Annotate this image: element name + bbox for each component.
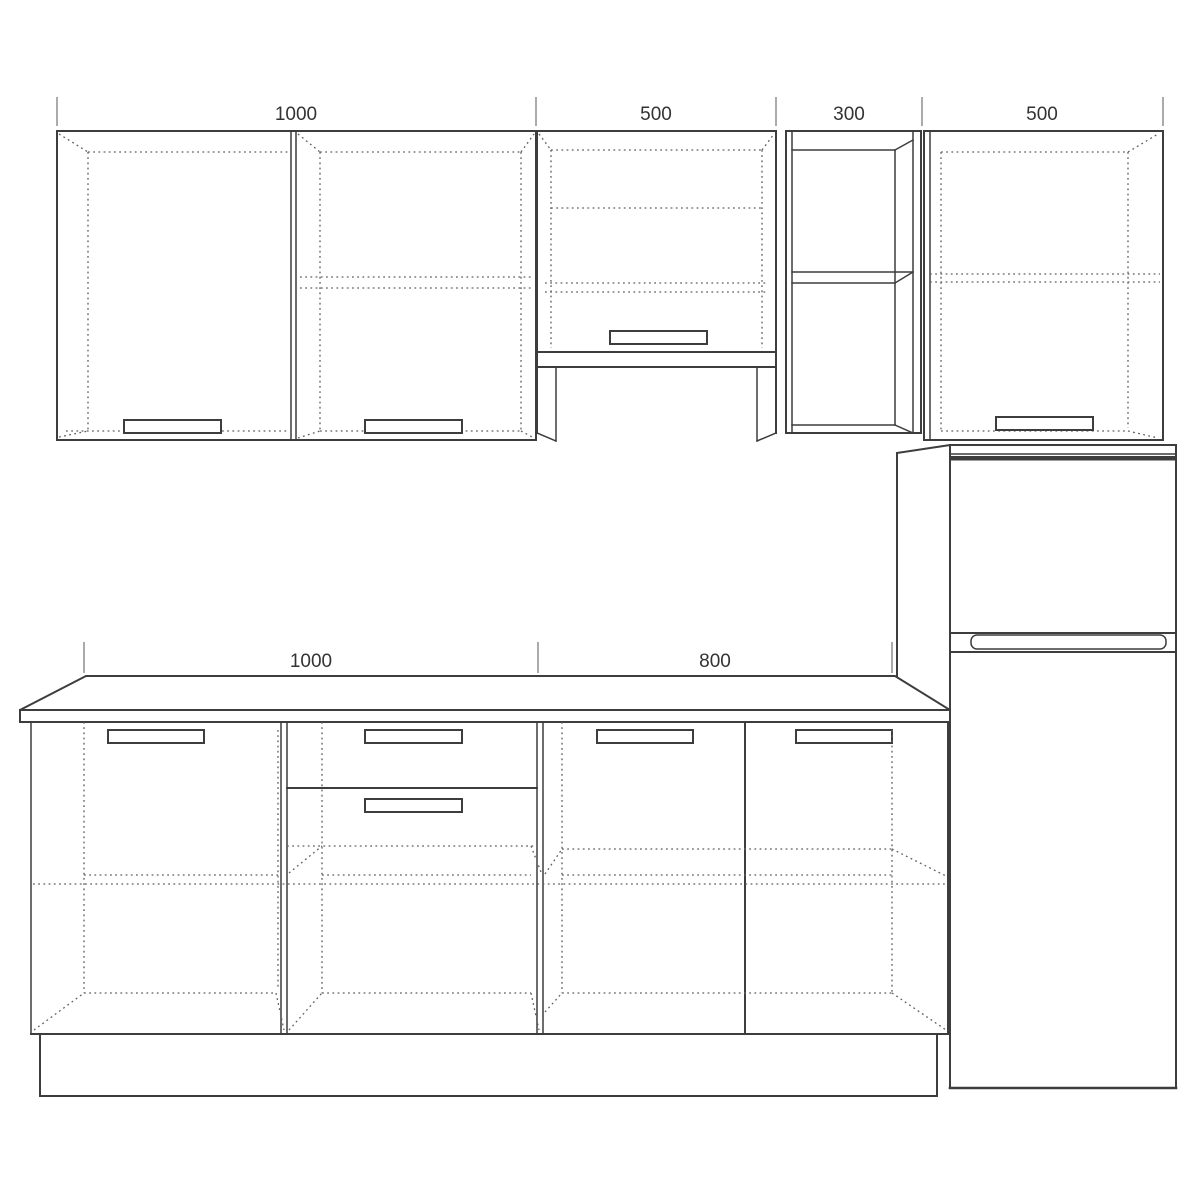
cabinet-outline xyxy=(537,131,776,352)
drawer-handle xyxy=(365,799,462,812)
wall-cabinet-1000 xyxy=(57,131,536,440)
door-handle xyxy=(124,420,221,433)
open-shelf-300 xyxy=(786,131,921,433)
leg-chamfer xyxy=(537,433,556,441)
countertop-outline xyxy=(20,676,950,722)
door-handle xyxy=(796,730,892,743)
dim-label-wall-500a: 500 xyxy=(640,104,672,125)
fridge-handle-recess xyxy=(971,635,1166,649)
top-dimension-row: 1000 500 300 500 xyxy=(57,97,1163,126)
kitchen-elevation-page: 1000 500 300 500 xyxy=(0,0,1200,1200)
door-handle xyxy=(610,331,707,344)
drawer-handle xyxy=(365,730,462,743)
shelf-outline xyxy=(786,131,921,433)
base-cabinets xyxy=(31,722,948,1034)
fridge-top-side xyxy=(897,445,950,453)
door-handle xyxy=(365,420,462,433)
kitchen-elevation-drawing: 1000 500 300 500 xyxy=(0,0,1200,1200)
wall-cabinet-500 xyxy=(924,131,1163,440)
dim-label-wall-500b: 500 xyxy=(1026,104,1058,125)
plinth xyxy=(40,1034,937,1096)
leg-chamfer xyxy=(757,433,776,441)
fridge-top-band xyxy=(950,456,1176,461)
dim-label-base-800: 800 xyxy=(699,651,731,672)
dim-label-base-1000: 1000 xyxy=(290,651,332,672)
fridge-front xyxy=(950,445,1176,1088)
cabinet-outline xyxy=(924,131,1163,440)
door-handle xyxy=(996,417,1093,430)
wall-cabinet-500-hood xyxy=(537,131,776,441)
dim-label-wall-300: 300 xyxy=(833,104,865,125)
plinth-outline xyxy=(40,1034,937,1096)
base-dimension-row: 1000 800 xyxy=(84,642,892,673)
dim-label-wall-1000: 1000 xyxy=(275,104,317,125)
door-handle xyxy=(597,730,693,743)
refrigerator xyxy=(897,445,1176,1088)
countertop xyxy=(20,676,950,722)
door-handle xyxy=(108,730,204,743)
